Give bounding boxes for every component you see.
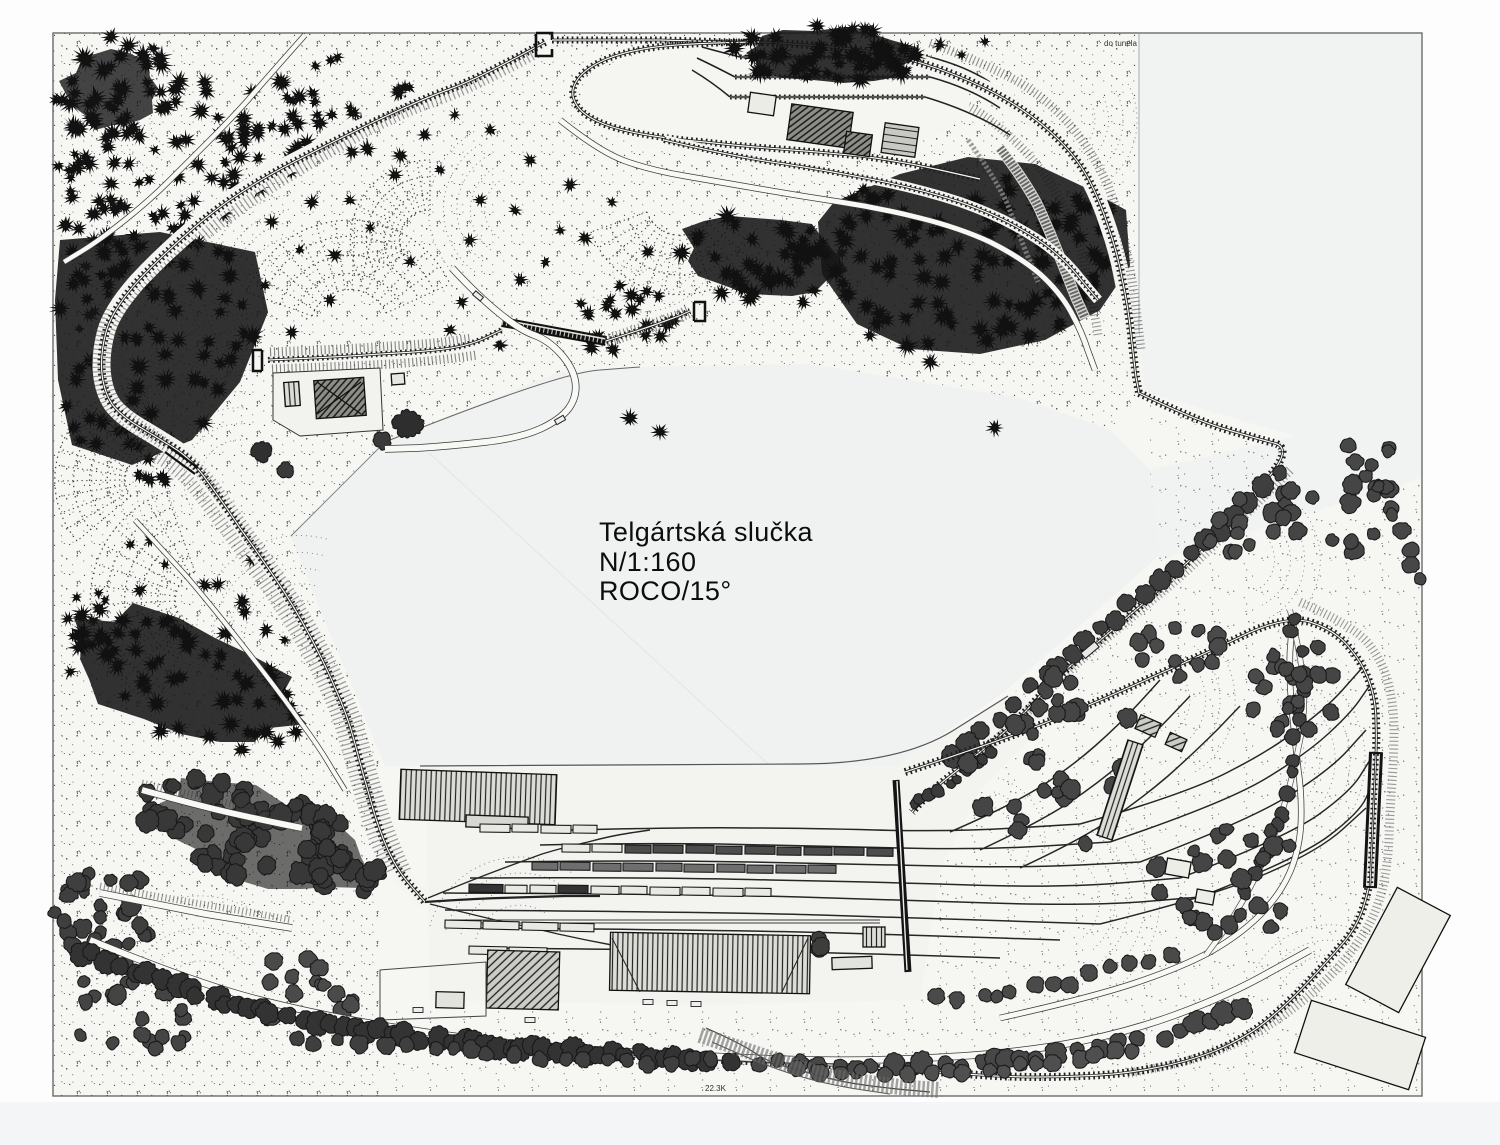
svg-text:22.3K: 22.3K <box>705 1084 727 1093</box>
svg-text:do tunela: do tunela <box>1104 39 1137 48</box>
